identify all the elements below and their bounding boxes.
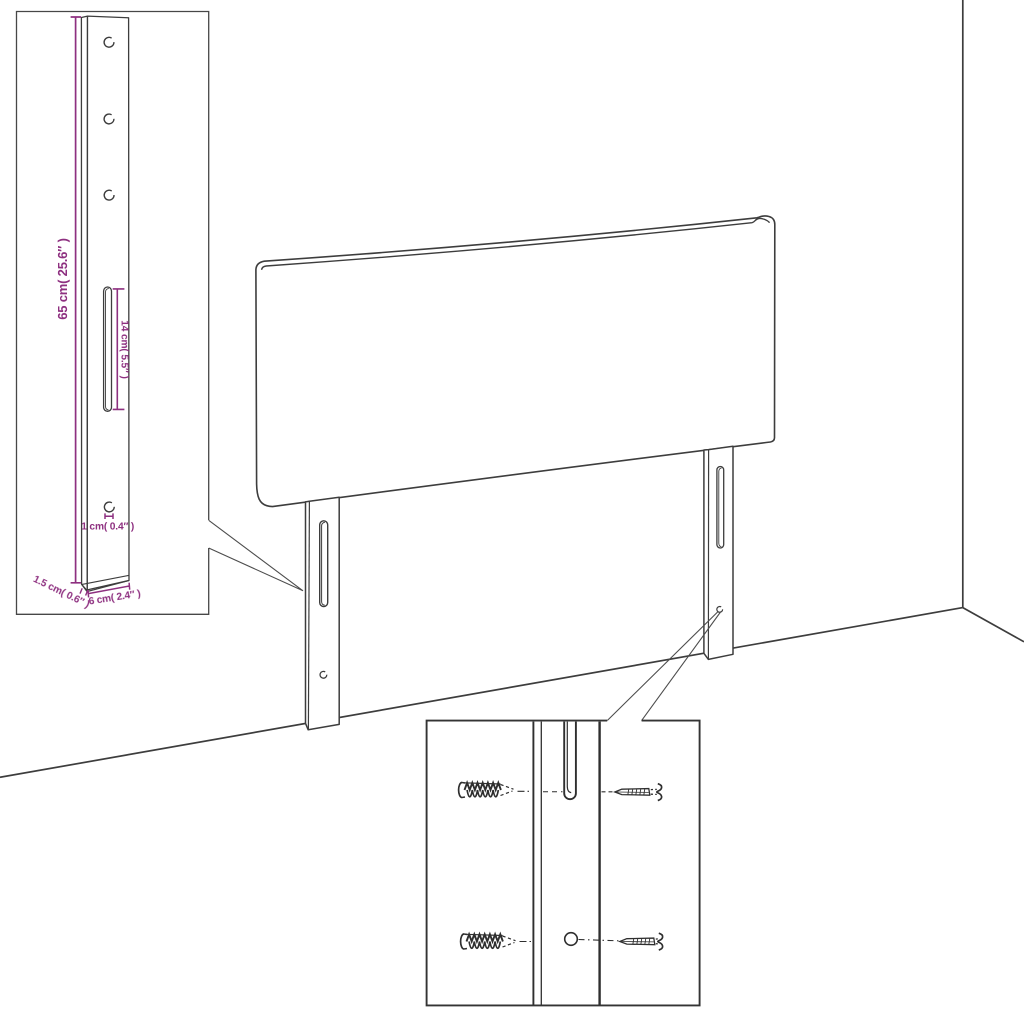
svg-text:65 cm( 25.6″ ): 65 cm( 25.6″ ) — [55, 238, 70, 319]
svg-text:1 cm( 0.4″ ): 1 cm( 0.4″ ) — [81, 521, 134, 532]
svg-text:14 cm( 5.5″ ): 14 cm( 5.5″ ) — [119, 320, 130, 378]
